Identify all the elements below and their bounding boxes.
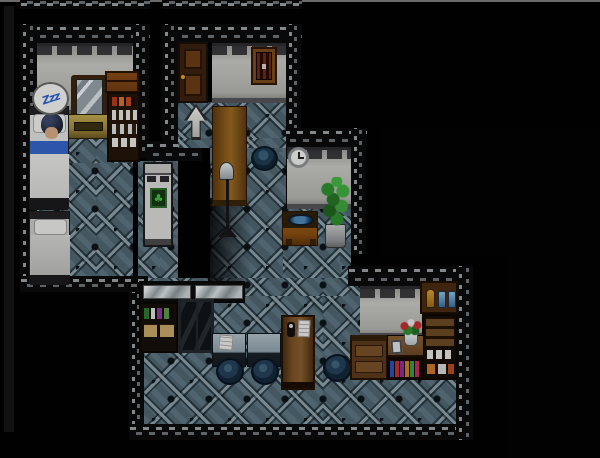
wash-basin[interactable] bbox=[282, 211, 318, 246]
basin-legs bbox=[286, 239, 316, 245]
dresser bbox=[66, 114, 110, 139]
girder-bottom bbox=[129, 424, 473, 440]
girder-entry-top bbox=[162, 24, 302, 43]
fridge-handles bbox=[147, 176, 169, 182]
phone-earpiece bbox=[289, 324, 293, 328]
basin-water bbox=[288, 214, 314, 226]
lamp-shade bbox=[219, 162, 234, 180]
shelf-row-jars bbox=[112, 97, 135, 106]
map-left-edge bbox=[4, 6, 14, 432]
arrow-face bbox=[187, 107, 205, 137]
flower-blooms bbox=[398, 318, 424, 336]
refrigerator[interactable]: ♣ bbox=[143, 162, 173, 247]
dish-row bbox=[427, 350, 454, 359]
bed2-footboard bbox=[30, 275, 69, 285]
bed2-pillow bbox=[34, 219, 67, 235]
dresser-drawer bbox=[74, 122, 103, 131]
bed1-blanket bbox=[31, 154, 69, 198]
up-arrow-sign[interactable] bbox=[184, 104, 208, 140]
supply-shelf bbox=[107, 92, 140, 162]
book-hutch bbox=[139, 302, 178, 353]
sideboard-drawer-1 bbox=[355, 345, 383, 357]
bed2-headboard bbox=[30, 212, 69, 219]
message-board[interactable] bbox=[281, 315, 315, 390]
girder-entry-offscreen bbox=[162, 0, 302, 9]
fridge-top bbox=[145, 164, 171, 175]
dish-shelf bbox=[422, 314, 458, 380]
framed-window bbox=[251, 47, 277, 85]
bed1-blanket-stripe bbox=[30, 141, 68, 154]
girder-entry-left bbox=[162, 24, 178, 148]
bed1-footboard bbox=[30, 198, 68, 210]
girder-washroom-right bbox=[351, 128, 366, 254]
shelf-row-bottles1 bbox=[112, 110, 137, 120]
window-glint bbox=[262, 64, 266, 69]
lamp-pole bbox=[226, 179, 229, 231]
shelf-row-dishes bbox=[112, 138, 137, 147]
glass-cabinet bbox=[178, 299, 214, 353]
potted-plant bbox=[317, 177, 353, 248]
stool-3[interactable] bbox=[323, 354, 352, 382]
board-phone[interactable] bbox=[287, 322, 295, 337]
girder-bedroom-offscreen bbox=[20, 0, 150, 9]
shelf-slats bbox=[426, 318, 454, 346]
sleeping-character-face[interactable] bbox=[45, 127, 58, 139]
girder-pantry-right bbox=[456, 266, 473, 440]
cooking-pot bbox=[251, 146, 278, 171]
jar-shelf bbox=[420, 281, 458, 314]
hutch-boxes bbox=[144, 324, 174, 337]
empty-bed[interactable] bbox=[29, 211, 70, 284]
sideboard bbox=[350, 335, 388, 380]
wooden-chest[interactable] bbox=[105, 71, 139, 93]
flower-pot bbox=[398, 318, 424, 348]
wooden-door[interactable] bbox=[178, 42, 208, 103]
blue-jar-2 bbox=[448, 291, 456, 308]
board-base bbox=[283, 382, 313, 388]
stool-1[interactable] bbox=[216, 358, 244, 385]
girder-entry-right bbox=[286, 24, 301, 130]
amber-jar bbox=[426, 289, 435, 308]
lamp-base bbox=[218, 228, 237, 237]
board-note[interactable] bbox=[298, 320, 311, 338]
door-panel-bottom bbox=[184, 74, 202, 96]
sleep-bubble-text: Zzz bbox=[40, 90, 61, 108]
plant-leaves bbox=[317, 177, 353, 233]
window-inner bbox=[256, 52, 272, 80]
floor-lamp bbox=[216, 162, 238, 242]
bookshelf-books bbox=[390, 361, 422, 377]
clock-hand-hour bbox=[298, 157, 304, 159]
wall-clock bbox=[288, 147, 309, 168]
mirror-glass bbox=[76, 79, 103, 118]
steel-panel-right bbox=[195, 285, 243, 299]
stool-2[interactable] bbox=[251, 358, 279, 385]
sideboard-drawer-2 bbox=[355, 361, 383, 373]
door-panel-top bbox=[184, 49, 202, 69]
game-map-canvas[interactable]: Zzz ♣ bbox=[0, 0, 600, 458]
chest-lid-seam bbox=[107, 80, 137, 82]
shelf-row-bottles2 bbox=[112, 124, 137, 134]
fridge-plant-badge: ♣ bbox=[150, 188, 167, 208]
hutch-books bbox=[144, 308, 173, 319]
cabinet-divider bbox=[196, 302, 198, 350]
bed2-blanket bbox=[31, 235, 70, 275]
steel-panel-left bbox=[143, 285, 191, 299]
girder-bedroom-top bbox=[20, 24, 150, 43]
goods-row bbox=[427, 364, 454, 374]
blue-jar-1 bbox=[438, 291, 446, 308]
door-knob bbox=[181, 75, 185, 79]
sleep-bubble: Zzz bbox=[32, 82, 69, 115]
table-paper[interactable] bbox=[218, 334, 233, 350]
fridge-base bbox=[145, 239, 171, 245]
